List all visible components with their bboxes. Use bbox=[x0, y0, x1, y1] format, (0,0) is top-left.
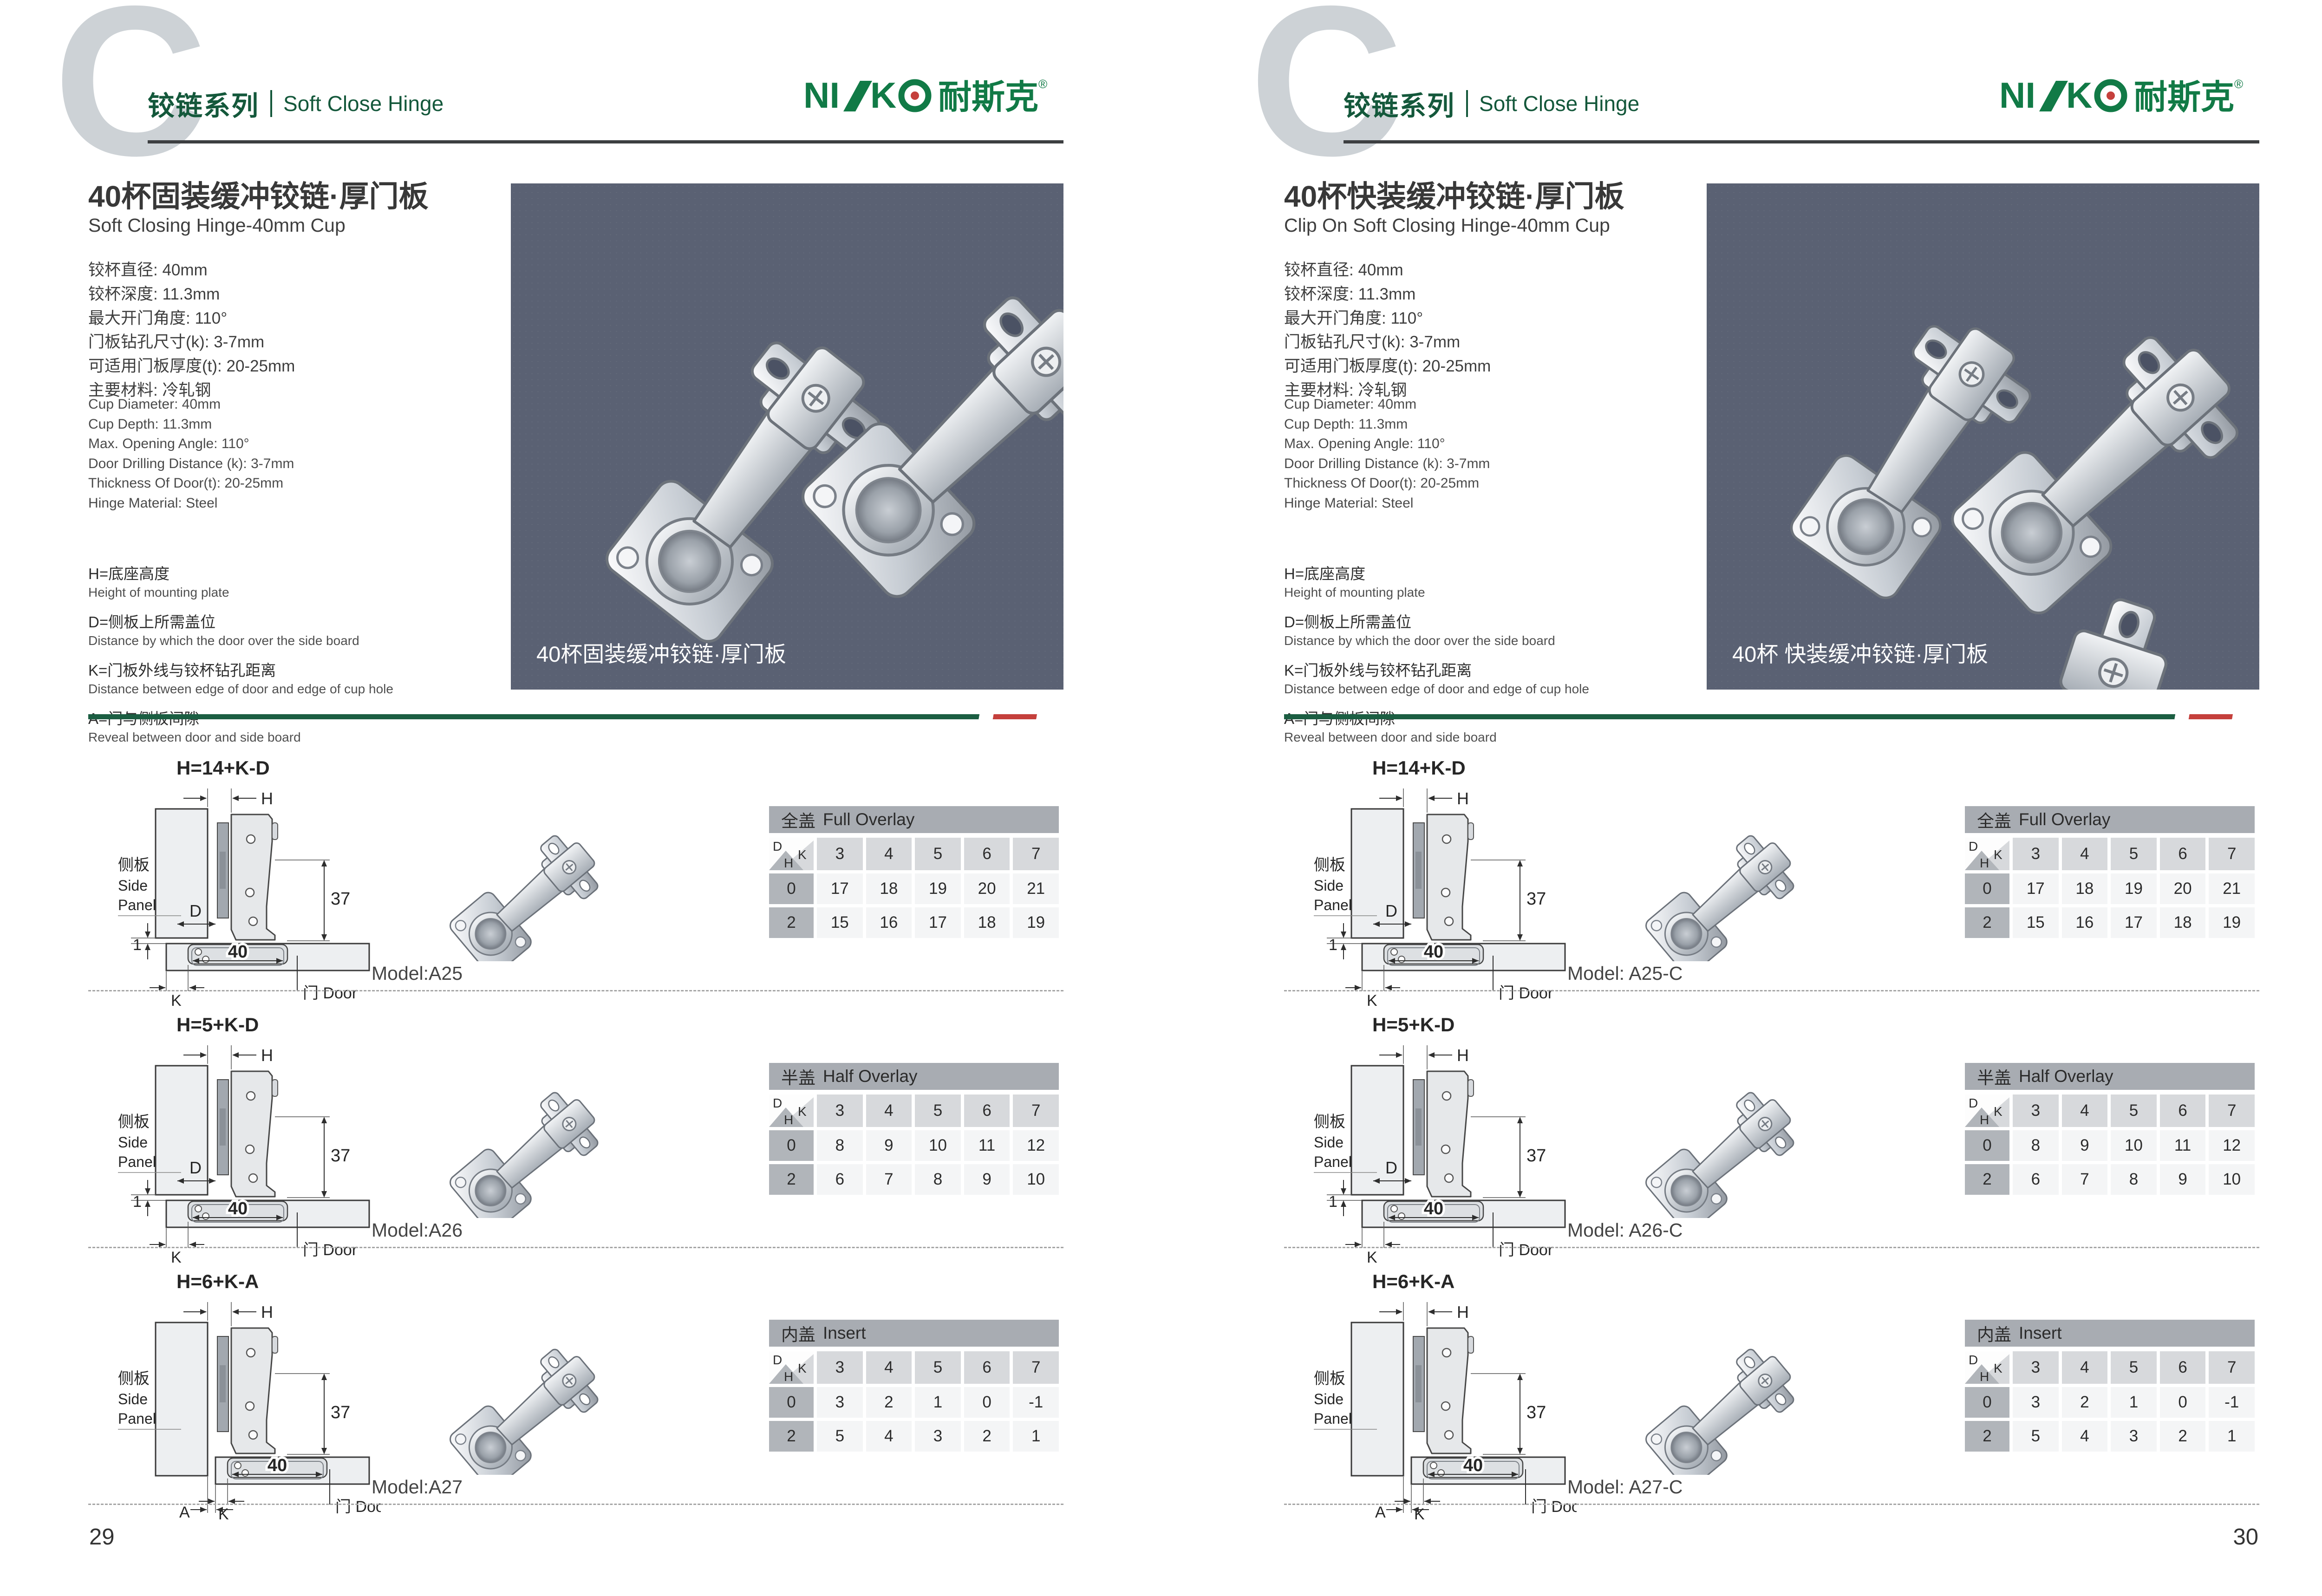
hinge-thumbnail bbox=[1591, 1018, 1818, 1223]
spec-line-en: Door Drilling Distance (k): 3-7mm bbox=[88, 454, 294, 474]
d-value-cell: 0 bbox=[964, 1387, 1010, 1418]
svg-text:37: 37 bbox=[331, 1146, 350, 1166]
svg-text:Panel: Panel bbox=[1314, 1410, 1352, 1427]
dimension-table: 半盖Half Overlay D K H34567089101112267891… bbox=[769, 1063, 1059, 1195]
legend-term-cn: K=门板外线与铰杯钻孔距离 bbox=[1284, 658, 1589, 680]
svg-text:40: 40 bbox=[228, 1199, 248, 1218]
d-value-cell: 8 bbox=[2013, 1130, 2059, 1161]
d-value-cell: 15 bbox=[2013, 907, 2059, 938]
product-spec-row: H=5+K-DH侧板SidePanel37D140门 DoorK 半盖Half … bbox=[1284, 1014, 2259, 1271]
spec-line-cn: 可适用门板厚度(t): 20-25mm bbox=[88, 354, 295, 378]
svg-text:门 Door: 门 Door bbox=[1531, 1498, 1577, 1516]
legend-term-cn: D=侧板上所需盖位 bbox=[88, 610, 393, 632]
legend-term-cn: D=侧板上所需盖位 bbox=[1284, 610, 1589, 632]
k-column-header: 4 bbox=[2062, 1094, 2108, 1127]
table-title-cn: 内盖 bbox=[781, 1321, 815, 1346]
k-column-header: 4 bbox=[866, 1351, 912, 1384]
hinge-product-illustration bbox=[1591, 762, 1813, 961]
d-value-cell: -1 bbox=[1013, 1387, 1059, 1418]
k-column-header: 5 bbox=[2111, 1094, 2157, 1127]
d-value-cell: 9 bbox=[2062, 1130, 2108, 1161]
svg-text:D: D bbox=[189, 901, 202, 920]
hinge-product-illustration bbox=[395, 762, 618, 961]
k-column-header: 3 bbox=[817, 1351, 863, 1384]
overlay-table: D K H345670171819202121516171819 bbox=[1965, 838, 2255, 938]
page-number: 30 bbox=[2233, 1524, 2258, 1550]
product-spec-row: H=5+K-DH侧板SidePanel37D140门 DoorK 半盖Half … bbox=[88, 1014, 1063, 1271]
svg-text:37: 37 bbox=[1526, 889, 1546, 909]
k-column-header: 5 bbox=[915, 1351, 961, 1384]
page-header: 铰链系列 Soft Close Hinge bbox=[1344, 78, 1639, 129]
product-spec-row: H=6+K-AH侧板SidePanel3740门 DoorKA 内盖Insert… bbox=[1284, 1270, 2259, 1528]
k-column-header: 5 bbox=[2111, 1351, 2157, 1384]
legend-term-en: Distance by which the door over the side… bbox=[88, 633, 393, 648]
spec-line-en: Door Drilling Distance (k): 3-7mm bbox=[1284, 454, 1490, 474]
d-value-cell: 20 bbox=[2160, 873, 2206, 904]
hinge-thumbnail bbox=[1591, 1275, 1818, 1479]
h-row-header: 2 bbox=[769, 1421, 814, 1452]
svg-text:K: K bbox=[798, 1361, 807, 1375]
d-value-cell: 10 bbox=[2111, 1130, 2157, 1161]
svg-text:H: H bbox=[784, 856, 793, 870]
d-value-cell: 19 bbox=[1013, 907, 1059, 938]
product-title-en: Clip On Soft Closing Hinge-40mm Cup bbox=[1284, 215, 1610, 236]
spec-line-en: Max. Opening Angle: 110° bbox=[1284, 434, 1490, 454]
page-number: 29 bbox=[89, 1524, 115, 1550]
svg-text:门 Door: 门 Door bbox=[303, 1241, 357, 1259]
svg-text:门 Door: 门 Door bbox=[303, 984, 357, 1002]
header-rule bbox=[148, 140, 1063, 143]
spec-line-en: Cup Depth: 11.3mm bbox=[88, 415, 294, 435]
svg-text:H=14+K-D: H=14+K-D bbox=[176, 757, 270, 779]
h-row-header: 0 bbox=[769, 873, 814, 904]
brand-logo: NI K 耐斯克 ® bbox=[1999, 75, 2259, 120]
svg-text:K: K bbox=[171, 1249, 182, 1265]
legend-term-en: Distance between edge of door and edge o… bbox=[88, 682, 393, 697]
h-row-header: 0 bbox=[1965, 873, 2009, 904]
d-value-cell: 16 bbox=[2062, 907, 2108, 938]
dashed-separator bbox=[88, 1504, 1063, 1505]
d-value-cell: 1 bbox=[1013, 1421, 1059, 1452]
k-column-header: 3 bbox=[817, 1094, 863, 1127]
corner-cell: D K H bbox=[1965, 1351, 2009, 1384]
dimension-table: 全盖Full Overlay D K H34567017181920212151… bbox=[769, 806, 1059, 938]
spec-line-cn: 铰杯深度: 11.3mm bbox=[88, 282, 295, 306]
dashed-separator bbox=[1284, 1504, 2259, 1505]
spec-line-en: Thickness Of Door(t): 20-25mm bbox=[88, 474, 294, 494]
d-value-cell: 21 bbox=[1013, 873, 1059, 904]
svg-text:H=6+K-A: H=6+K-A bbox=[176, 1270, 259, 1292]
hinge-diagram: H=5+K-DH侧板SidePanel37D140门 DoorK bbox=[1307, 1010, 1577, 1265]
svg-text:Panel: Panel bbox=[1314, 897, 1352, 913]
d-value-cell: 8 bbox=[915, 1164, 961, 1195]
table-title-cn: 内盖 bbox=[1977, 1321, 2011, 1346]
spec-line-cn: 最大开门角度: 110° bbox=[88, 306, 295, 331]
logo-slash bbox=[2039, 81, 2068, 111]
product-spec-row: H=14+K-DH侧板SidePanel37D140门 DoorK 全盖Full… bbox=[88, 757, 1063, 1015]
d-value-cell: 3 bbox=[2111, 1421, 2157, 1452]
svg-text:H: H bbox=[1980, 1113, 1989, 1127]
table-title-cn: 半盖 bbox=[1977, 1064, 2011, 1089]
d-value-cell: 18 bbox=[2062, 873, 2108, 904]
svg-text:侧板: 侧板 bbox=[1314, 856, 1345, 874]
k-column-header: 4 bbox=[2062, 838, 2108, 870]
table-title-en: Full Overlay bbox=[2019, 810, 2110, 829]
hinge-product-illustration bbox=[395, 1018, 618, 1218]
d-value-cell: 11 bbox=[2160, 1130, 2206, 1161]
svg-text:NI: NI bbox=[803, 75, 840, 116]
svg-text:H: H bbox=[261, 1303, 273, 1322]
k-column-header: 6 bbox=[2160, 1094, 2206, 1127]
d-value-cell: 9 bbox=[964, 1164, 1010, 1195]
table-corner-dkh: D K H bbox=[769, 1094, 814, 1127]
hinge-thumbnail bbox=[395, 1018, 622, 1223]
specs-en: Cup Diameter: 40mmCup Depth: 11.3mmMax. … bbox=[1284, 395, 1490, 514]
brand-logo: NI K 耐斯克 ® bbox=[803, 75, 1063, 120]
spec-line-en: Cup Depth: 11.3mm bbox=[1284, 415, 1490, 435]
d-value-cell: 21 bbox=[2209, 873, 2255, 904]
legend-term-en: Height of mounting plate bbox=[1284, 585, 1589, 600]
hinge-section-diagram: H=14+K-DH侧板SidePanel37D140门 DoorK bbox=[111, 753, 381, 1009]
table-title-cn: 半盖 bbox=[781, 1064, 815, 1089]
table-title-en: Half Overlay bbox=[2019, 1067, 2113, 1086]
k-column-header: 7 bbox=[1013, 838, 1059, 870]
dimension-table: 内盖Insert D K H3456703210-1254321 bbox=[769, 1320, 1059, 1452]
h-row-header: 2 bbox=[769, 1164, 814, 1195]
corner-cell: D K H bbox=[769, 1094, 814, 1127]
table-title-en: Insert bbox=[823, 1323, 866, 1343]
d-value-cell: 3 bbox=[2013, 1387, 2059, 1418]
spec-line-en: Max. Opening Angle: 110° bbox=[88, 434, 294, 454]
k-column-header: 4 bbox=[866, 838, 912, 870]
nisko-logo: NI K 耐斯克 ® bbox=[1999, 75, 2259, 118]
svg-text:K: K bbox=[1414, 1505, 1425, 1522]
k-column-header: 4 bbox=[866, 1094, 912, 1127]
hinge-diagram: H=6+K-AH侧板SidePanel3740门 DoorKA bbox=[1307, 1267, 1577, 1522]
model-label: Model:A25 bbox=[372, 963, 463, 984]
model-label: Model: A27-C bbox=[1567, 1476, 1683, 1498]
overlay-table: D K H3456703210-1254321 bbox=[1965, 1351, 2255, 1452]
legend-term-en: Reveal between door and side board bbox=[1284, 730, 1589, 745]
product-spec-row: H=14+K-DH侧板SidePanel37D140门 DoorK 全盖Full… bbox=[1284, 757, 2259, 1015]
d-value-cell: 17 bbox=[2111, 907, 2157, 938]
svg-text:40: 40 bbox=[1424, 1199, 1443, 1218]
k-column-header: 6 bbox=[964, 838, 1010, 870]
d-value-cell: 4 bbox=[2062, 1421, 2108, 1452]
svg-text:1: 1 bbox=[133, 936, 142, 954]
d-value-cell: 2 bbox=[2160, 1421, 2206, 1452]
hinge-diagram: H=6+K-AH侧板SidePanel3740门 DoorKA bbox=[111, 1267, 381, 1522]
spec-line-cn: 最大开门角度: 110° bbox=[1284, 306, 1491, 331]
d-value-cell: 0 bbox=[2160, 1387, 2206, 1418]
specs-cn: 铰杯直径: 40mm铰杯深度: 11.3mm最大开门角度: 110°门板钻孔尺寸… bbox=[88, 258, 295, 403]
photo-caption: 40杯 快装缓冲铰链·厚门板 bbox=[1732, 636, 1988, 668]
h-row-header: 2 bbox=[1965, 907, 2009, 938]
overlay-table: D K H345670171819202121516171819 bbox=[769, 838, 1059, 938]
nisko-logo: NI K 耐斯克 ® bbox=[803, 75, 1063, 118]
overlay-table: D K H345670891011122678910 bbox=[769, 1094, 1059, 1195]
svg-text:D: D bbox=[1969, 839, 1978, 853]
dashed-separator bbox=[1284, 1247, 2259, 1248]
k-column-header: 7 bbox=[2209, 1094, 2255, 1127]
svg-text:D: D bbox=[1969, 1096, 1978, 1110]
header-divider bbox=[1466, 90, 1468, 117]
product-spec-row: H=6+K-AH侧板SidePanel3740门 DoorKA 内盖Insert… bbox=[88, 1270, 1063, 1528]
d-value-cell: 6 bbox=[2013, 1164, 2059, 1195]
d-value-cell: 20 bbox=[964, 873, 1010, 904]
hinge-section-diagram: H=14+K-DH侧板SidePanel37D140门 DoorK bbox=[1307, 753, 1577, 1009]
svg-text:H=6+K-A: H=6+K-A bbox=[1372, 1270, 1455, 1292]
k-column-header: 5 bbox=[2111, 838, 2157, 870]
section-divider bbox=[1284, 714, 2259, 719]
table-corner-dkh: D K H bbox=[1965, 838, 2009, 870]
legend-term-cn: H=底座高度 bbox=[88, 561, 393, 584]
photo-caption: 40杯固装缓冲铰链·厚门板 bbox=[536, 636, 786, 668]
d-value-cell: 3 bbox=[915, 1421, 961, 1452]
table-title-en: Full Overlay bbox=[823, 810, 914, 829]
table-title-cn: 全盖 bbox=[781, 807, 815, 832]
svg-text:D: D bbox=[189, 1158, 202, 1177]
logo-red-dot bbox=[911, 91, 919, 100]
svg-text:K: K bbox=[218, 1505, 229, 1522]
table-title: 全盖Full Overlay bbox=[1965, 806, 2255, 833]
d-value-cell: 19 bbox=[2209, 907, 2255, 938]
svg-text:Panel: Panel bbox=[1314, 1153, 1352, 1170]
legend-term-en: Reveal between door and side board bbox=[88, 730, 393, 745]
k-column-header: 5 bbox=[915, 1094, 961, 1127]
hinge-product-illustration bbox=[1591, 1018, 1813, 1218]
logo-red-dot bbox=[2107, 91, 2115, 100]
hinge-section-diagram: H=5+K-DH侧板SidePanel37D140门 DoorK bbox=[1307, 1010, 1577, 1265]
spec-line-cn: 可适用门板厚度(t): 20-25mm bbox=[1284, 354, 1491, 378]
d-value-cell: 18 bbox=[2160, 907, 2206, 938]
h-row-header: 2 bbox=[1965, 1421, 2009, 1452]
hinge-thumbnail bbox=[395, 1275, 622, 1479]
k-column-header: 7 bbox=[2209, 838, 2255, 870]
spec-line-cn: 门板钻孔尺寸(k): 3-7mm bbox=[1284, 330, 1491, 354]
svg-text:K: K bbox=[1994, 1361, 2002, 1375]
svg-text:D: D bbox=[1385, 901, 1397, 920]
d-value-cell: 11 bbox=[964, 1130, 1010, 1161]
d-value-cell: 1 bbox=[2209, 1421, 2255, 1452]
logo-slash bbox=[843, 81, 872, 111]
svg-text:门 Door: 门 Door bbox=[1499, 1241, 1553, 1259]
d-value-cell: 10 bbox=[2209, 1164, 2255, 1195]
k-column-header: 3 bbox=[2013, 1094, 2059, 1127]
svg-text:37: 37 bbox=[331, 889, 350, 909]
dimension-table: 内盖Insert D K H3456703210-1254321 bbox=[1965, 1320, 2255, 1452]
corner-cell: D K H bbox=[1965, 838, 2009, 870]
d-value-cell: 2 bbox=[866, 1387, 912, 1418]
h-row-header: 0 bbox=[1965, 1130, 2009, 1161]
svg-text:D: D bbox=[773, 839, 782, 853]
dimension-table: 半盖Half Overlay D K H34567089101112267891… bbox=[1965, 1063, 2255, 1195]
spec-line-cn: 铰杯深度: 11.3mm bbox=[1284, 282, 1491, 306]
d-value-cell: 9 bbox=[2160, 1164, 2206, 1195]
table-corner-dkh: D K H bbox=[1965, 1094, 2009, 1127]
svg-text:H: H bbox=[784, 1369, 793, 1384]
hinge-section-diagram: H=5+K-DH侧板SidePanel37D140门 DoorK bbox=[111, 1010, 381, 1265]
svg-text:D: D bbox=[1969, 1353, 1978, 1367]
series-title-en: Soft Close Hinge bbox=[283, 91, 444, 116]
svg-text:37: 37 bbox=[1526, 1403, 1546, 1422]
svg-text:Side: Side bbox=[1314, 1134, 1344, 1151]
h-row-header: 2 bbox=[769, 907, 814, 938]
header-divider bbox=[270, 90, 272, 117]
header-rule bbox=[1344, 140, 2259, 143]
dashed-separator bbox=[1284, 990, 2259, 991]
table-title: 半盖Half Overlay bbox=[769, 1063, 1059, 1090]
svg-text:K: K bbox=[2066, 75, 2092, 116]
k-column-header: 4 bbox=[2062, 1351, 2108, 1384]
k-column-header: 5 bbox=[915, 838, 961, 870]
d-value-cell: 10 bbox=[915, 1130, 961, 1161]
d-value-cell: 18 bbox=[866, 873, 912, 904]
series-title-cn: 铰链系列 bbox=[148, 84, 259, 123]
svg-text:H: H bbox=[261, 789, 273, 808]
spec-line-cn: 铰杯直径: 40mm bbox=[88, 258, 295, 282]
svg-text:K: K bbox=[1367, 992, 1377, 1009]
d-value-cell: 19 bbox=[915, 873, 961, 904]
svg-text:侧板: 侧板 bbox=[118, 856, 150, 874]
overlay-table: D K H3456703210-1254321 bbox=[769, 1351, 1059, 1452]
svg-text:耐斯克: 耐斯克 bbox=[938, 79, 1038, 116]
series-title-cn: 铰链系列 bbox=[1344, 84, 1455, 123]
svg-text:K: K bbox=[1994, 847, 2002, 862]
hinge-product-illustration bbox=[1591, 1275, 1813, 1475]
svg-text:Side: Side bbox=[118, 1391, 148, 1407]
d-value-cell: 1 bbox=[2111, 1387, 2157, 1418]
hinge-photo-pair bbox=[511, 183, 1063, 690]
catalog-page-right: C 铰链系列 Soft Close Hinge NI K 耐斯克 ® 40杯快装… bbox=[1284, 0, 2259, 1596]
svg-text:®: ® bbox=[1038, 77, 1047, 91]
hinge-thumbnail bbox=[395, 762, 622, 966]
hinge-section-diagram: H=6+K-AH侧板SidePanel3740门 DoorKA bbox=[1307, 1267, 1577, 1522]
d-value-cell: 1 bbox=[915, 1387, 961, 1418]
k-column-header: 7 bbox=[2209, 1351, 2255, 1384]
svg-text:®: ® bbox=[2234, 77, 2243, 91]
d-value-cell: 2 bbox=[2062, 1387, 2108, 1418]
k-column-header: 3 bbox=[2013, 838, 2059, 870]
spec-line-cn: 门板钻孔尺寸(k): 3-7mm bbox=[88, 330, 295, 354]
legend-term-cn: H=底座高度 bbox=[1284, 561, 1589, 584]
k-column-header: 6 bbox=[2160, 838, 2206, 870]
specs-en: Cup Diameter: 40mmCup Depth: 11.3mmMax. … bbox=[88, 395, 294, 514]
h-row-header: 0 bbox=[769, 1130, 814, 1161]
catalog-page-left: C 铰链系列 Soft Close Hinge NI K 耐斯克 ® 40杯固装… bbox=[88, 0, 1063, 1596]
svg-text:40: 40 bbox=[1463, 1456, 1483, 1475]
table-title: 内盖Insert bbox=[769, 1320, 1059, 1347]
svg-text:侧板: 侧板 bbox=[1314, 1113, 1345, 1131]
svg-text:Side: Side bbox=[1314, 877, 1344, 894]
h-row-header: 0 bbox=[1965, 1387, 2009, 1418]
d-value-cell: 8 bbox=[2111, 1164, 2157, 1195]
product-photo: 40杯 快装缓冲铰链·厚门板 bbox=[1707, 183, 2259, 690]
d-value-cell: 17 bbox=[915, 907, 961, 938]
svg-text:40: 40 bbox=[1424, 942, 1443, 962]
svg-text:H: H bbox=[1457, 1303, 1469, 1322]
svg-text:A: A bbox=[179, 1504, 190, 1521]
svg-text:NI: NI bbox=[1999, 75, 2035, 116]
spec-line-en: Hinge Material: Steel bbox=[1284, 494, 1490, 514]
corner-cell: D K H bbox=[769, 1351, 814, 1384]
product-title-cn: 40杯快装缓冲铰链·厚门板 bbox=[1284, 173, 1624, 215]
svg-text:门 Door: 门 Door bbox=[335, 1498, 381, 1516]
product-photo: 40杯固装缓冲铰链·厚门板 bbox=[511, 183, 1063, 690]
svg-text:1: 1 bbox=[133, 1193, 142, 1211]
corner-cell: D K H bbox=[769, 838, 814, 870]
k-column-header: 7 bbox=[1013, 1094, 1059, 1127]
d-value-cell: 7 bbox=[2062, 1164, 2108, 1195]
svg-text:K: K bbox=[1367, 1249, 1377, 1265]
svg-text:侧板: 侧板 bbox=[118, 1370, 150, 1388]
table-corner-dkh: D K H bbox=[769, 838, 814, 870]
dashed-separator bbox=[88, 990, 1063, 991]
legend-term-cn: K=门板外线与铰杯钻孔距离 bbox=[88, 658, 393, 680]
svg-text:A: A bbox=[1375, 1504, 1386, 1521]
svg-text:Side: Side bbox=[118, 1134, 148, 1151]
svg-text:K: K bbox=[798, 1104, 807, 1119]
svg-text:门 Door: 门 Door bbox=[1499, 984, 1553, 1002]
dimension-table: 全盖Full Overlay D K H34567017181920212151… bbox=[1965, 806, 2255, 938]
spec-line-en: Cup Diameter: 40mm bbox=[88, 395, 294, 415]
dashed-separator bbox=[88, 1247, 1063, 1248]
section-divider bbox=[88, 714, 1063, 719]
spec-line-en: Thickness Of Door(t): 20-25mm bbox=[1284, 474, 1490, 494]
d-value-cell: 16 bbox=[866, 907, 912, 938]
svg-text:H: H bbox=[261, 1046, 273, 1065]
product-title-en: Soft Closing Hinge-40mm Cup bbox=[88, 215, 346, 236]
svg-text:37: 37 bbox=[1526, 1146, 1546, 1166]
svg-text:40: 40 bbox=[267, 1456, 287, 1475]
specs-cn: 铰杯直径: 40mm铰杯深度: 11.3mm最大开门角度: 110°门板钻孔尺寸… bbox=[1284, 258, 1491, 403]
d-value-cell: 7 bbox=[866, 1164, 912, 1195]
model-label: Model: A26-C bbox=[1567, 1219, 1683, 1241]
svg-text:H=14+K-D: H=14+K-D bbox=[1372, 757, 1466, 779]
svg-text:37: 37 bbox=[331, 1403, 350, 1422]
table-title: 半盖Half Overlay bbox=[1965, 1063, 2255, 1090]
d-value-cell: 5 bbox=[2013, 1421, 2059, 1452]
svg-text:D: D bbox=[773, 1096, 782, 1110]
table-title: 内盖Insert bbox=[1965, 1320, 2255, 1347]
svg-text:侧板: 侧板 bbox=[1314, 1370, 1345, 1388]
k-column-header: 7 bbox=[1013, 1351, 1059, 1384]
product-title-cn: 40杯固装缓冲铰链·厚门板 bbox=[88, 173, 429, 215]
model-label: Model:A27 bbox=[372, 1476, 463, 1498]
svg-text:K: K bbox=[798, 847, 807, 862]
hinge-diagram: H=14+K-DH侧板SidePanel37D140门 DoorK bbox=[111, 753, 381, 1009]
h-row-header: 2 bbox=[1965, 1164, 2009, 1195]
svg-text:D: D bbox=[773, 1353, 782, 1367]
d-value-cell: 17 bbox=[817, 873, 863, 904]
d-value-cell: 5 bbox=[817, 1421, 863, 1452]
svg-text:K: K bbox=[171, 992, 182, 1009]
d-value-cell: 4 bbox=[866, 1421, 912, 1452]
hinge-diagram: H=5+K-DH侧板SidePanel37D140门 DoorK bbox=[111, 1010, 381, 1265]
svg-text:Side: Side bbox=[1314, 1391, 1344, 1407]
svg-text:K: K bbox=[870, 75, 896, 116]
svg-text:40: 40 bbox=[228, 942, 248, 962]
legend-term-en: Distance by which the door over the side… bbox=[1284, 633, 1589, 648]
legend-term-en: Distance between edge of door and edge o… bbox=[1284, 682, 1589, 697]
svg-text:1: 1 bbox=[1329, 1193, 1337, 1211]
d-value-cell: 15 bbox=[817, 907, 863, 938]
d-value-cell: 19 bbox=[2111, 873, 2157, 904]
table-title-en: Half Overlay bbox=[823, 1067, 918, 1086]
svg-text:H: H bbox=[1980, 856, 1989, 870]
hinge-section-diagram: H=6+K-AH侧板SidePanel3740门 DoorKA bbox=[111, 1267, 381, 1522]
model-label: Model:A26 bbox=[372, 1219, 463, 1241]
